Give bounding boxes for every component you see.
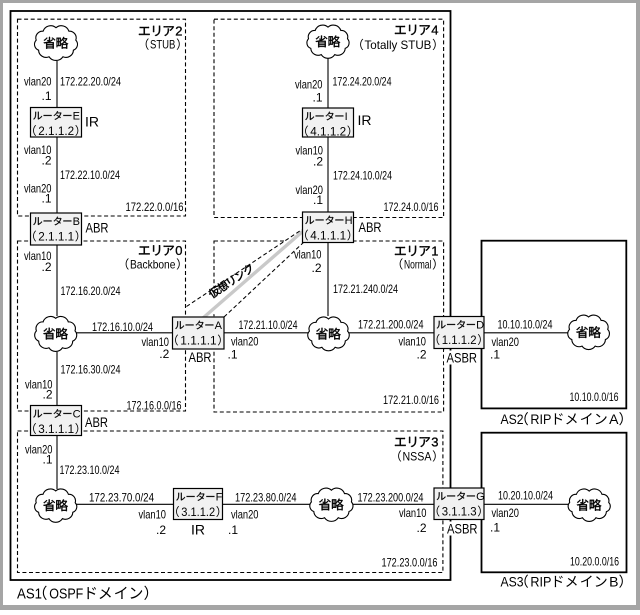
svg-text:172.16.20.0/24: 172.16.20.0/24 [61, 284, 121, 298]
svg-text:2.1.1.2: 2.1.1.2 [38, 126, 74, 138]
svg-text:IR: IR [358, 112, 372, 128]
svg-text:.1: .1 [312, 91, 322, 105]
svg-text:172.21.10.0/24: 172.21.10.0/24 [239, 318, 298, 332]
svg-text:172.22.10.0/24: 172.22.10.0/24 [60, 168, 120, 182]
svg-text:vlan10: vlan10 [399, 334, 427, 348]
svg-text:A: A [609, 411, 619, 427]
svg-text:.2: .2 [313, 154, 323, 168]
svg-text:OSPF: OSPF [49, 586, 83, 603]
svg-text:vlan20: vlan20 [24, 75, 52, 89]
svg-text:vlan20: vlan20 [231, 508, 259, 522]
svg-text:1.1.1.2: 1.1.1.2 [442, 335, 477, 347]
svg-text:NSSA: NSSA [403, 451, 432, 464]
svg-text:vlan10: vlan10 [399, 506, 427, 520]
svg-text:.2: .2 [41, 260, 51, 274]
svg-text:2.1.1.1: 2.1.1.1 [38, 231, 74, 243]
svg-text:172.22.0.0/16: 172.22.0.0/16 [126, 200, 184, 214]
svg-text:172.21.0.0/16: 172.21.0.0/16 [383, 393, 439, 407]
svg-text:172.24.0.0/16: 172.24.0.0/16 [384, 200, 439, 214]
svg-text:B: B [609, 574, 618, 590]
svg-text:B: B [73, 216, 80, 228]
svg-text:RIP: RIP [530, 574, 551, 590]
svg-text:.1: .1 [313, 193, 323, 207]
svg-text:AS1: AS1 [17, 586, 42, 603]
svg-text:STUB: STUB [150, 39, 176, 52]
svg-text:172.23.80.0/24: 172.23.80.0/24 [235, 491, 297, 505]
svg-text:10.10.10.0/24: 10.10.10.0/24 [498, 318, 553, 332]
svg-text:Totally STUB: Totally STUB [365, 39, 432, 52]
svg-text:.2: .2 [156, 523, 166, 537]
svg-text:vlan10: vlan10 [294, 248, 322, 262]
svg-text:ABR: ABR [85, 414, 108, 430]
svg-text:10.20.10.0/24: 10.20.10.0/24 [498, 489, 553, 503]
svg-text:E: E [73, 110, 80, 122]
svg-text:IR: IR [191, 522, 205, 538]
svg-text:172.16.10.0/24: 172.16.10.0/24 [92, 320, 153, 334]
svg-text:G: G [476, 491, 485, 503]
svg-text:172.21.200.0/24: 172.21.200.0/24 [358, 318, 424, 332]
svg-text:172.23.70.0/24: 172.23.70.0/24 [89, 491, 154, 505]
svg-text:AS3: AS3 [501, 574, 524, 590]
svg-text:172.23.10.0/24: 172.23.10.0/24 [60, 463, 120, 477]
svg-text:1.1.1.1: 1.1.1.1 [180, 335, 216, 347]
svg-text:.1: .1 [228, 348, 238, 362]
svg-text:.2: .2 [41, 153, 51, 167]
svg-text:10.10.0.0/16: 10.10.0.0/16 [570, 390, 619, 404]
svg-text:.2: .2 [416, 521, 426, 535]
svg-text:172.21.240.0/24: 172.21.240.0/24 [333, 282, 398, 296]
svg-text:.1: .1 [41, 192, 51, 206]
svg-text:172.22.20.0/24: 172.22.20.0/24 [60, 75, 121, 89]
svg-text:3.1.1.1: 3.1.1.1 [38, 424, 74, 436]
svg-text:172.23.0.0/16: 172.23.0.0/16 [382, 556, 438, 570]
svg-text:I: I [345, 111, 348, 123]
svg-text:ABR: ABR [359, 219, 382, 235]
svg-text:H: H [345, 215, 353, 227]
svg-text:ABR: ABR [189, 349, 212, 365]
svg-text:Backbone: Backbone [130, 259, 175, 272]
svg-text:F: F [216, 491, 223, 503]
svg-text:RIP: RIP [530, 411, 551, 427]
svg-text:.1: .1 [228, 523, 238, 537]
svg-text:172.24.10.0/24: 172.24.10.0/24 [333, 169, 392, 183]
svg-text:2: 2 [175, 24, 182, 39]
svg-text:ASBR: ASBR [447, 521, 478, 537]
svg-text:vlan20: vlan20 [231, 335, 259, 349]
svg-text:.1: .1 [42, 453, 52, 467]
svg-text:3.1.1.3: 3.1.1.3 [442, 506, 477, 518]
svg-text:.1: .1 [490, 521, 500, 535]
svg-text:10.20.0.0/16: 10.20.0.0/16 [570, 555, 619, 569]
svg-text:172.23.200.0/24: 172.23.200.0/24 [358, 491, 424, 505]
svg-text:4: 4 [431, 23, 438, 38]
svg-text:IR: IR [85, 114, 99, 130]
svg-text:172.16.30.0/24: 172.16.30.0/24 [61, 363, 121, 377]
svg-text:Normal: Normal [404, 259, 431, 272]
svg-text:3.1.1.2: 3.1.1.2 [181, 507, 215, 519]
svg-text:0: 0 [175, 243, 182, 258]
svg-text:172.24.20.0/24: 172.24.20.0/24 [333, 75, 392, 89]
svg-text:.2: .2 [42, 388, 52, 402]
svg-text:.2: .2 [159, 347, 169, 361]
svg-text:vlan20: vlan20 [492, 506, 520, 520]
svg-text:ASBR: ASBR [447, 350, 478, 366]
svg-text:3: 3 [431, 435, 438, 450]
svg-text:C: C [73, 408, 81, 420]
svg-text:.1: .1 [490, 347, 500, 361]
svg-text:vlan10: vlan10 [139, 508, 167, 522]
svg-text:4.1.1.2: 4.1.1.2 [310, 126, 346, 138]
svg-text:.2: .2 [311, 261, 321, 275]
svg-text:D: D [476, 319, 484, 331]
svg-text:1: 1 [431, 244, 438, 259]
svg-text:.2: .2 [416, 348, 426, 362]
svg-text:172.16.0.0/16: 172.16.0.0/16 [127, 398, 182, 412]
svg-text:A: A [215, 320, 223, 332]
svg-text:vlan20: vlan20 [295, 78, 323, 92]
svg-text:4.1.1.1: 4.1.1.1 [310, 230, 346, 242]
svg-text:AS2: AS2 [501, 411, 524, 427]
svg-text:ABR: ABR [86, 220, 109, 236]
svg-text:.1: .1 [41, 89, 51, 103]
